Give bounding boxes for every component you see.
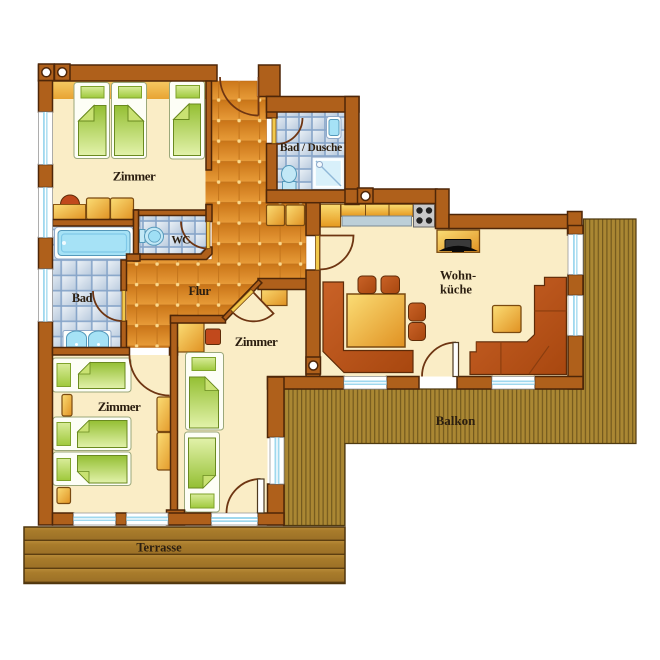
- svg-text:küche: küche: [440, 283, 472, 297]
- svg-text:Wohn-: Wohn-: [440, 269, 476, 283]
- svg-text:Terrasse: Terrasse: [136, 541, 182, 555]
- svg-text:Flur: Flur: [188, 284, 211, 298]
- svg-text:Zimmer: Zimmer: [113, 169, 156, 184]
- svg-text:Zimmer: Zimmer: [98, 399, 141, 414]
- svg-text:Bad: Bad: [72, 291, 93, 305]
- svg-text:WC: WC: [171, 235, 190, 247]
- svg-text:Balkon: Balkon: [436, 413, 477, 428]
- svg-text:Zimmer: Zimmer: [235, 334, 278, 349]
- svg-text:Bad / Dusche: Bad / Dusche: [280, 142, 342, 154]
